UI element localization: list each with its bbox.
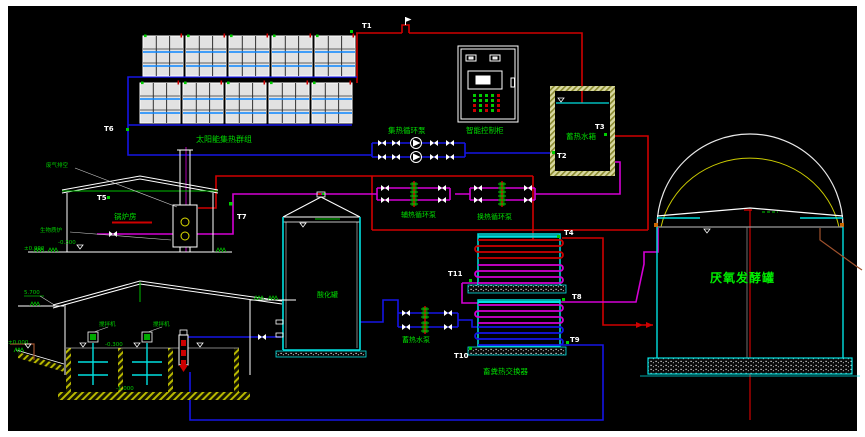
temp-sensor	[552, 151, 555, 154]
temp-sensor	[469, 279, 472, 282]
pool-slab	[58, 392, 250, 400]
tag-t7: T7	[237, 213, 247, 221]
boiler-room-label: 锅炉房	[114, 211, 137, 221]
schematic-canvas: 太阳能集热群组 T1 T6 集热循环泵 智能控制柜 蓄	[0, 0, 865, 437]
pool-top-elevation: -0.300	[105, 342, 123, 348]
temp-sensor	[350, 30, 353, 33]
feed-pump	[179, 330, 188, 372]
manure-heat-exchanger-label: 畜粪热交换器	[483, 366, 528, 376]
temp-sensor	[562, 298, 565, 301]
storage-water-pump-label: 蓄热水泵	[402, 335, 430, 344]
temp-sensor	[126, 128, 129, 131]
tag-t5: T5	[97, 194, 107, 202]
exhaust-vent-label: 废气排空	[46, 161, 69, 169]
aux-heat-pump-label: 辅热循环泵	[401, 210, 436, 219]
control-cabinet-label: 智能控制柜	[466, 125, 504, 135]
heat-exchange-pump-label: 换热循环泵	[477, 212, 512, 221]
collection-pump-label: 集热循环泵	[388, 125, 426, 135]
cad-drawing: 太阳能集热群组 T1 T6 集热循环泵 智能控制柜 蓄	[0, 0, 865, 437]
pool-bottom-elevation: -1.000	[116, 386, 134, 392]
solar-array-label: 太阳能集热群组	[196, 134, 252, 144]
temp-sensor	[229, 202, 233, 206]
mixer-label-2: 搅拌机	[153, 320, 170, 328]
tag-t6: T6	[104, 125, 114, 133]
anaerobic-digester-label: 厌氧发酵罐	[710, 270, 775, 285]
roof-eave-elevation: 5.700	[24, 290, 40, 296]
tag-t10: T10	[454, 352, 469, 360]
tag-t2: T2	[557, 152, 567, 160]
tag-t8: T8	[572, 293, 582, 301]
acidification-tank-label: 酸化罐	[317, 290, 338, 299]
temp-sensor	[566, 341, 569, 344]
temp-sensor	[604, 133, 607, 136]
pool-wall	[168, 348, 173, 392]
tag-t4: T4	[564, 229, 574, 237]
boiler-pit-elevation: -0.300	[58, 240, 76, 246]
tag-t3: T3	[595, 123, 605, 131]
temp-sensor	[107, 196, 110, 199]
storage-tank-label: 蓄热水箱	[566, 131, 596, 141]
pool-wall	[66, 348, 71, 392]
tag-t11: T11	[448, 270, 463, 278]
tag-t1: T1	[362, 22, 372, 30]
pool-wall	[234, 348, 239, 392]
temp-sensor	[469, 347, 472, 350]
mixer-label-1: 搅拌机	[99, 320, 116, 328]
temp-sensor	[557, 235, 560, 238]
biomass-boiler-label: 生物质炉	[40, 226, 63, 234]
tag-t9: T9	[570, 336, 580, 344]
